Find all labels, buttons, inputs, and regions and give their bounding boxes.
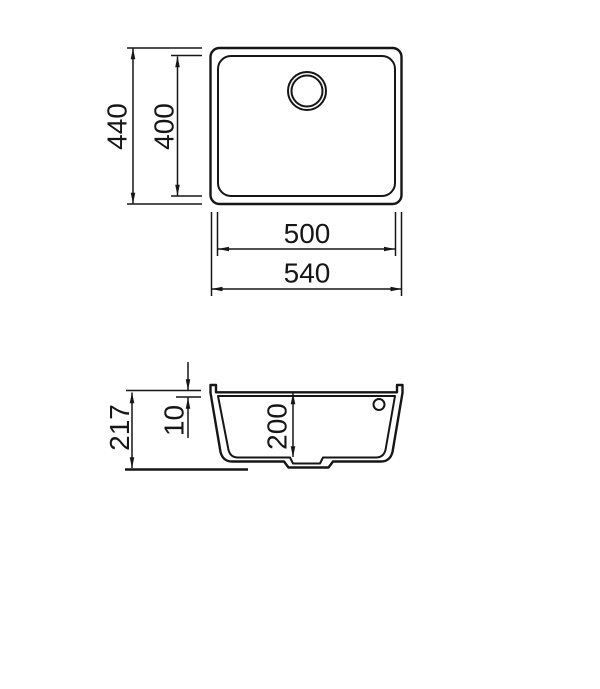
dim-rim-height: 10 bbox=[159, 362, 202, 438]
top-view: 440 400 500 540 bbox=[102, 48, 402, 296]
sink-section-inner-surface bbox=[218, 396, 395, 464]
dim-bowl-height: 400 bbox=[149, 56, 203, 197]
section-view: 217 10 200 bbox=[104, 362, 403, 470]
sink-technical-drawing: 440 400 500 540 bbox=[0, 0, 600, 689]
dim-bowl-depth: 200 bbox=[262, 393, 296, 457]
sink-bowl-edge bbox=[218, 56, 395, 196]
dim-label-overall-depth: 217 bbox=[104, 404, 135, 451]
drawing-svg: 440 400 500 540 bbox=[0, 0, 600, 689]
dim-label-overall-height: 440 bbox=[102, 103, 133, 150]
drain-outer-circle bbox=[288, 72, 326, 110]
dim-bowl-width: 500 bbox=[218, 212, 396, 256]
dim-label-bowl-height: 400 bbox=[149, 103, 180, 150]
drain-inner-circle bbox=[292, 76, 323, 107]
dim-label-bowl-depth: 200 bbox=[262, 403, 293, 450]
dim-label-overall-width: 540 bbox=[284, 258, 331, 289]
sink-section-outline bbox=[211, 385, 403, 468]
overflow-hole-circle bbox=[374, 399, 385, 410]
dim-label-rim-height: 10 bbox=[159, 405, 190, 436]
dim-label-bowl-width: 500 bbox=[284, 218, 331, 249]
